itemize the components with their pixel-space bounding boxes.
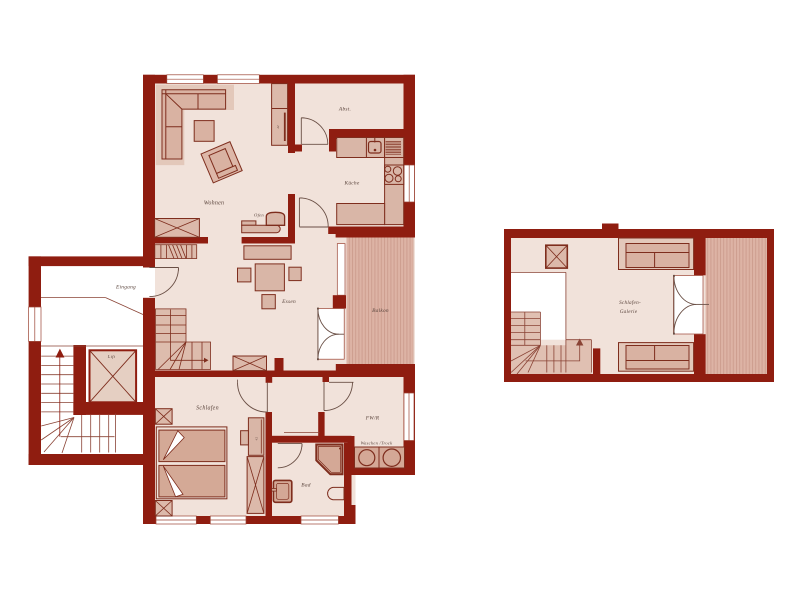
svg-text:Schlafen: Schlafen: [196, 405, 219, 412]
svg-text:Balkon: Balkon: [372, 308, 389, 314]
svg-text:Schlafen-: Schlafen-: [619, 299, 641, 306]
svg-text:Waschen /Trock: Waschen /Trock: [361, 440, 394, 445]
svg-text:FW/R: FW/R: [365, 415, 380, 421]
svg-text:Eingang: Eingang: [115, 284, 136, 290]
svg-text:Essen: Essen: [281, 299, 296, 305]
svg-text:Küche: Küche: [343, 181, 359, 187]
svg-text:42: 42: [255, 437, 259, 441]
svg-text:Bad: Bad: [301, 482, 310, 488]
svg-text:Galerie: Galerie: [620, 309, 638, 315]
svg-text:42: 42: [276, 125, 280, 129]
svg-text:Abst.: Abst.: [338, 107, 351, 113]
svg-text:Lift: Lift: [107, 354, 116, 359]
svg-text:Wohnen: Wohnen: [204, 200, 225, 206]
svg-text:Ofen: Ofen: [254, 213, 264, 218]
